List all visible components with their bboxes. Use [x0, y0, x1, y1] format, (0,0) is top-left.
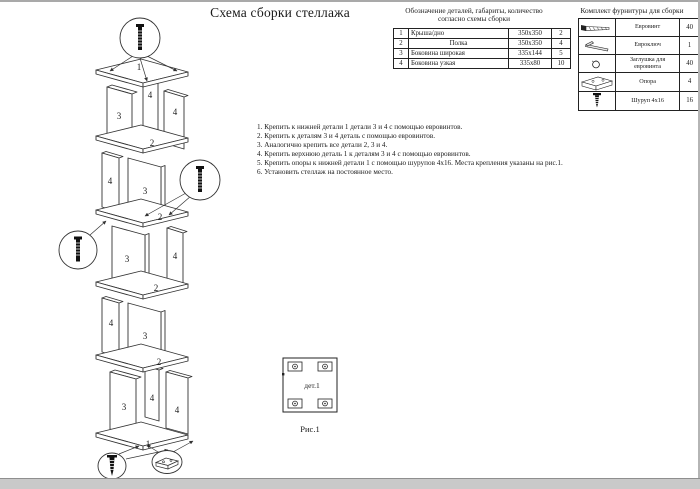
table-row: Евровинт 40 — [579, 19, 700, 37]
part-qty: 5 — [552, 49, 571, 59]
hw-qty: 1 — [680, 37, 700, 55]
part-num: 3 — [394, 49, 409, 59]
hw-qty: 4 — [680, 73, 700, 92]
part-num: 2 — [394, 39, 409, 49]
part-label: 4 — [150, 393, 155, 403]
page-top-rule — [0, 0, 700, 2]
hardware-table: Евровинт 40 Евроключ 1 Заглушка для евро… — [578, 18, 700, 111]
table-row: 3 Боковина широкая 335х144 5 — [394, 49, 571, 59]
part-size: 335х144 — [509, 49, 552, 59]
part-label: 1 — [146, 439, 151, 449]
part-size: 335х80 — [509, 59, 552, 69]
hw-name: Шуруп 4х16 — [616, 92, 680, 111]
part-label: 3 — [125, 254, 130, 264]
part-label: 4 — [173, 251, 178, 261]
part-label: 4 — [148, 90, 153, 100]
hw-name: Евроключ — [616, 37, 680, 55]
table-row: Евроключ 1 — [579, 37, 700, 55]
parts-caption-line2: согласно схемы сборки — [378, 15, 570, 23]
part-label: 3 — [122, 402, 127, 412]
part-label: 3 — [143, 186, 148, 196]
instruction-line: 4. Крепить верхнюю деталь 1 к деталям 3 … — [257, 150, 647, 159]
hw-name: Евровинт — [616, 19, 680, 37]
callout-euro-screw-left — [59, 221, 106, 269]
hw-name: Заглушка для евровинта — [616, 55, 680, 73]
part-label: 3 — [143, 331, 148, 341]
instruction-line: 2. Крепить к деталям 3 и 4 деталь с помо… — [257, 132, 647, 141]
instruction-line: 1. Крепить к нижней детали 1 детали 3 и … — [257, 123, 647, 132]
figure-1-detail: дет.1 Рис.1 — [282, 358, 337, 434]
part-label: 4 — [109, 318, 114, 328]
part-label: 4 — [175, 405, 180, 415]
instruction-line: 3. Аналогично крепить все детали 2, 3 и … — [257, 141, 647, 150]
hw-qty: 16 — [680, 92, 700, 111]
parts-table: 1 Крыша/дно 350х350 2 2 Полка 350х350 4 … — [393, 28, 571, 69]
support-foot-icon — [579, 73, 615, 91]
part-label: 2 — [154, 283, 159, 293]
hw-qty: 40 — [680, 19, 700, 37]
table-row: 1 Крыша/дно 350х350 2 — [394, 29, 571, 39]
hw-qty: 40 — [680, 55, 700, 73]
wood-screw-icon — [579, 92, 615, 110]
hw-icon-cell — [579, 19, 616, 37]
euro-screw-icon — [579, 20, 615, 36]
part-size: 350х350 — [509, 29, 552, 39]
table-row: Шуруп 4х16 16 — [579, 92, 700, 111]
part-label: 4 — [173, 107, 178, 117]
part-label: 2 — [150, 138, 155, 148]
table-row: 2 Полка 350х350 4 — [394, 39, 571, 49]
hw-icon-cell — [579, 73, 616, 92]
hw-name: Опора — [616, 73, 680, 92]
page-title: Схема сборки стеллажа — [165, 5, 395, 21]
part-num: 4 — [394, 59, 409, 69]
table-row: Опора 4 — [579, 73, 700, 92]
instruction-line: 6. Установить стеллаж на постоянное мест… — [257, 168, 647, 177]
part-name: Крыша/дно — [409, 29, 509, 39]
hex-key-icon — [579, 38, 615, 54]
plug-icon — [579, 56, 615, 72]
part-label: 1 — [137, 62, 142, 72]
hardware-table-caption: Комплект фурнитуры для сборки — [566, 7, 698, 15]
hw-icon-cell — [579, 37, 616, 55]
part-num: 1 — [394, 29, 409, 39]
figure-part-label: дет.1 — [304, 381, 320, 390]
table-row: Заглушка для евровинта 40 — [579, 55, 700, 73]
part-label: 2 — [157, 357, 162, 367]
parts-table-caption: Обозначение деталей, габариты, количеств… — [378, 7, 570, 24]
part-qty: 4 — [552, 39, 571, 49]
page-footer-bar — [0, 478, 700, 489]
assembly-instruction-page: { "colors": {"ink":"#1a1a1a","line":"#33… — [0, 0, 700, 489]
hw-icon-cell — [579, 55, 616, 73]
part-size: 350х350 — [509, 39, 552, 49]
hw-icon-cell — [579, 92, 616, 111]
table-row: 4 Боковина узкая 335х80 10 — [394, 59, 571, 69]
part-name: Боковина широкая — [409, 49, 509, 59]
part-qty: 10 — [552, 59, 571, 69]
figure-caption: Рис.1 — [300, 424, 319, 434]
assembly-steps: 1. Крепить к нижней детали 1 детали 3 и … — [257, 123, 647, 177]
part-label: 2 — [158, 212, 163, 222]
instruction-line: 5. Крепить опоры к нижней детали 1 с пом… — [257, 159, 647, 168]
part-qty: 2 — [552, 29, 571, 39]
part-name: Боковина узкая — [409, 59, 509, 69]
part-label: 4 — [108, 176, 113, 186]
part-name: Полка — [409, 39, 509, 49]
part-label: 3 — [117, 111, 122, 121]
